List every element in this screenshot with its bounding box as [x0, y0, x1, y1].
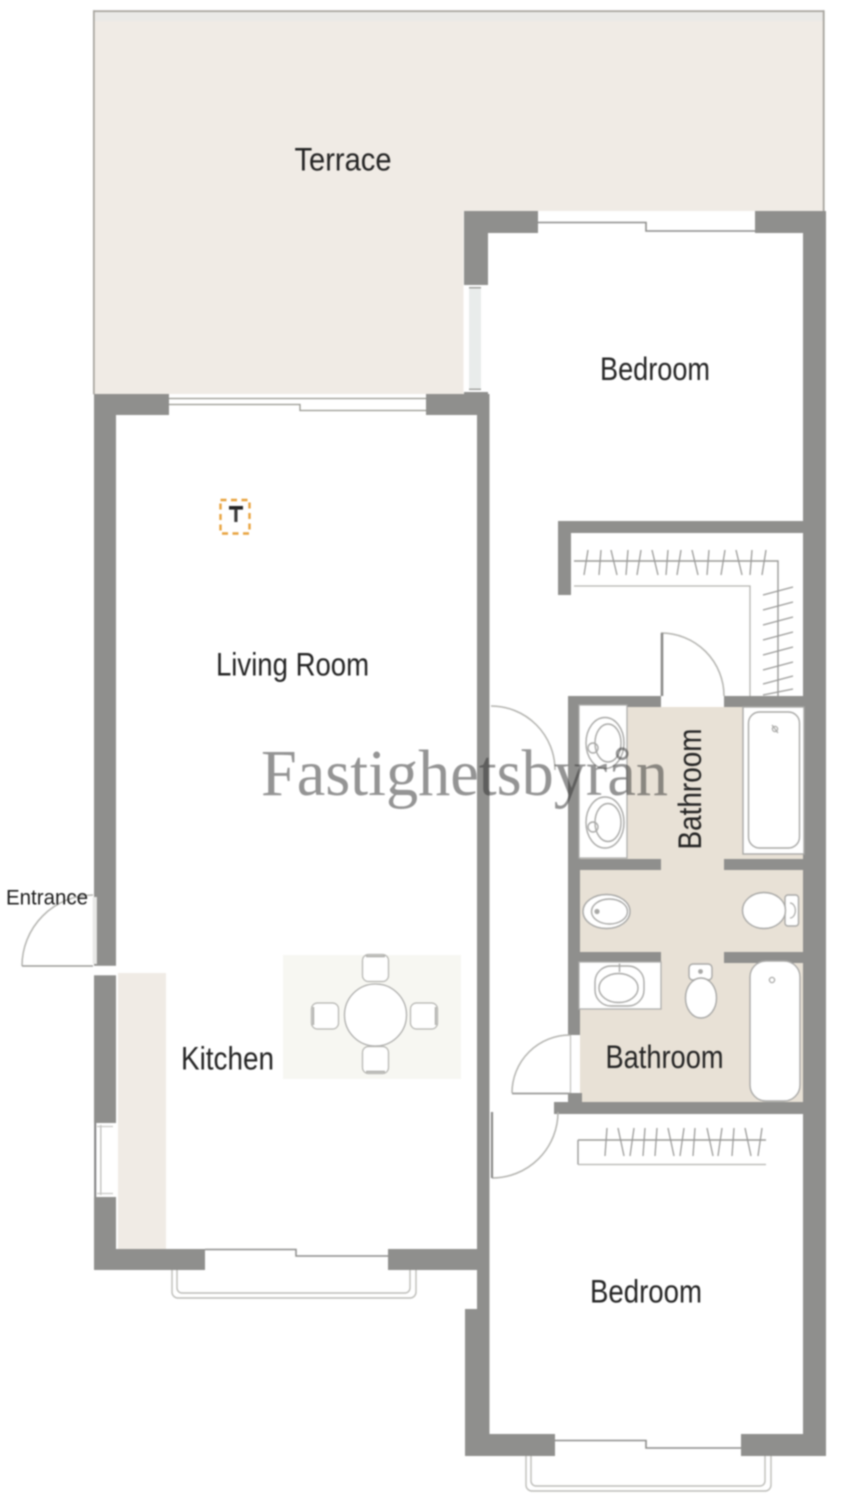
svg-text:Bathroom: Bathroom — [672, 729, 708, 850]
svg-text:Bedroom: Bedroom — [590, 1274, 702, 1310]
svg-text:Fastighetsbyrån: Fastighetsbyrån — [261, 737, 668, 810]
svg-text:Living Room: Living Room — [216, 647, 369, 683]
svg-text:Bathroom: Bathroom — [606, 1039, 724, 1075]
svg-text:Bedroom: Bedroom — [600, 351, 710, 387]
svg-text:Terrace: Terrace — [295, 142, 392, 178]
svg-text:Entrance: Entrance — [6, 887, 88, 910]
svg-text:Kitchen: Kitchen — [181, 1041, 274, 1077]
